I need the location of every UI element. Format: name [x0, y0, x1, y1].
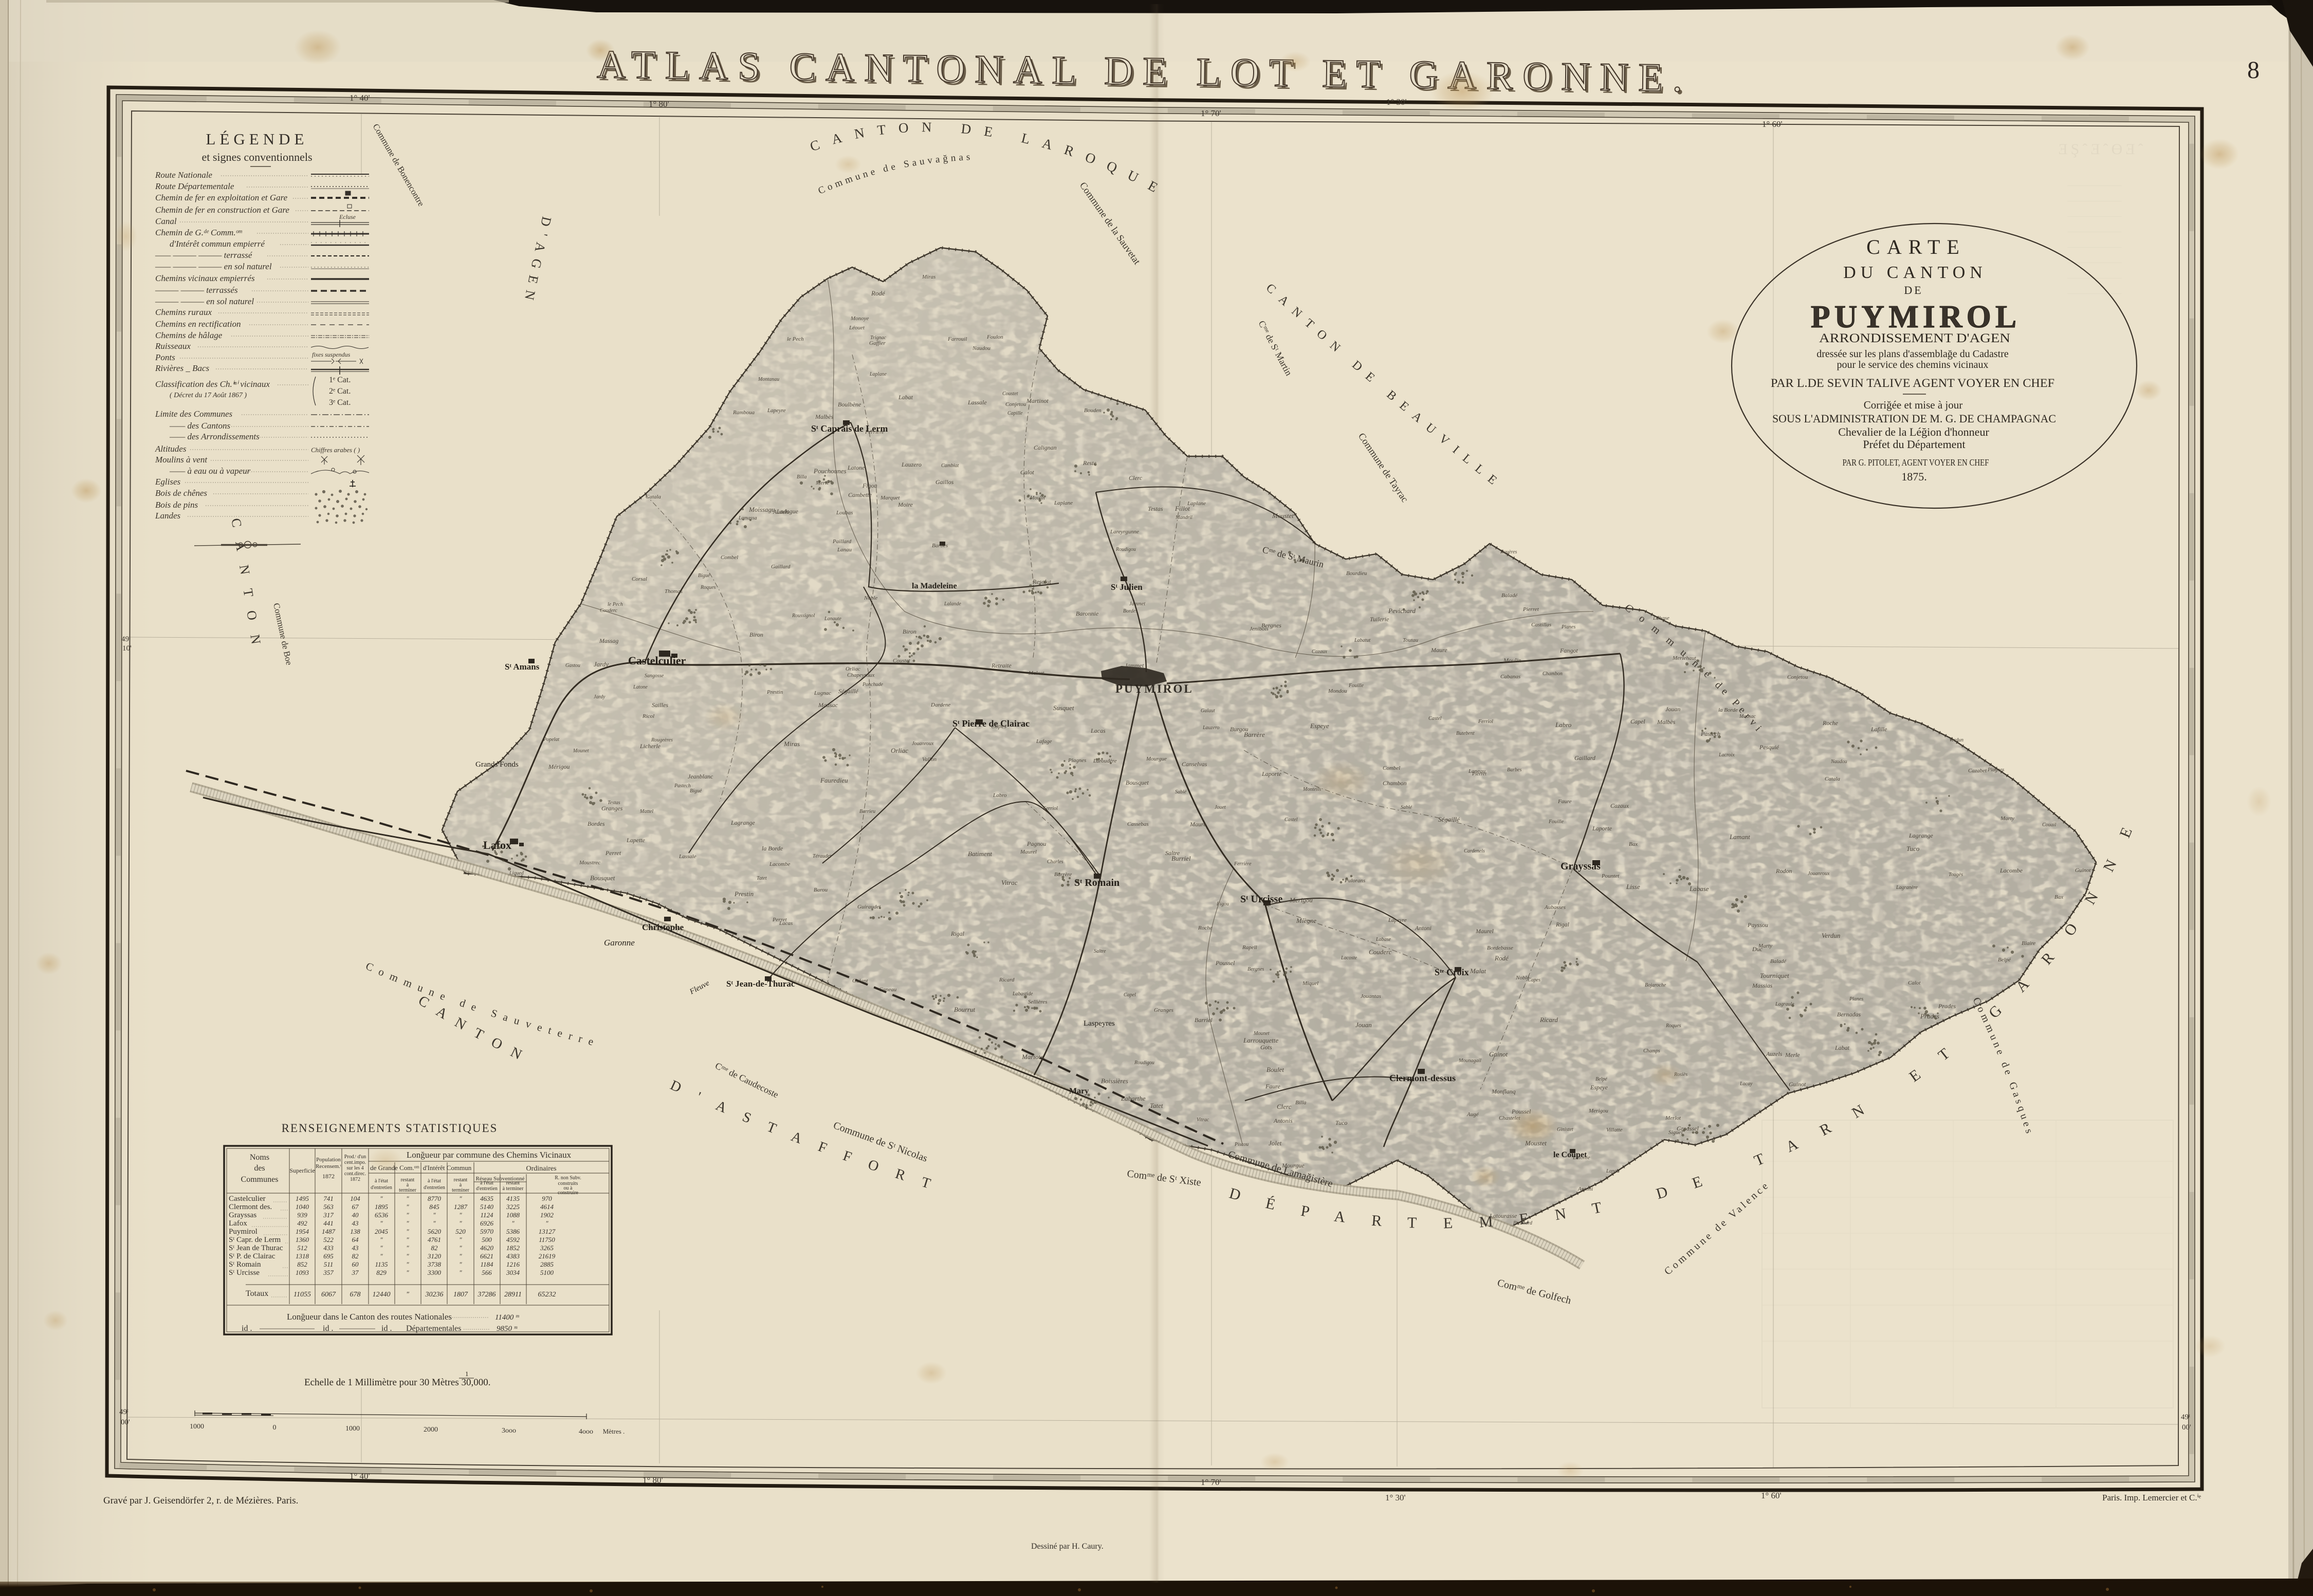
svg-text:6621: 6621 [480, 1252, 493, 1260]
svg-text:″: ″ [459, 1244, 462, 1252]
svg-text:1° 30': 1° 30' [1386, 97, 1407, 107]
svg-text:Mausac: Mausac [818, 701, 838, 709]
svg-text:60: 60 [352, 1260, 359, 1268]
svg-text:″: ″ [406, 1244, 409, 1252]
svg-text:Naudou: Naudou [972, 345, 990, 351]
svg-text:Pouchounes: Pouchounes [813, 467, 847, 475]
svg-text:3265: 3265 [540, 1244, 554, 1252]
svg-text:Malbès: Malbès [1657, 718, 1676, 726]
svg-text:Roche: Roche [1198, 925, 1213, 931]
svg-text:Butebent: Butebent [1456, 731, 1475, 736]
svg-text:Ruisseaux: Ruisseaux [155, 341, 191, 351]
svg-text:Loubas: Loubas [836, 510, 853, 516]
svg-text:5970: 5970 [480, 1228, 494, 1235]
svg-text:Sailles: Sailles [652, 701, 668, 709]
svg-text:la Borde: la Borde [762, 845, 783, 852]
svg-text:id .: id . [381, 1324, 392, 1333]
svg-text:Canselvas: Canselvas [1182, 760, 1207, 768]
svg-text:Laporte: Laporte [1592, 825, 1612, 832]
svg-text:——— ——— terrassés: ——— ——— terrassés [155, 285, 238, 295]
svg-text:d'entretien: d'entretien [371, 1185, 392, 1191]
svg-text:Téraudet: Téraudet [813, 853, 831, 859]
svg-text:Jeanblanc: Jeanblanc [688, 773, 713, 780]
svg-text:Ferriol: Ferriol [1042, 806, 1058, 811]
svg-text:566: 566 [482, 1269, 492, 1276]
svg-text:Lassale: Lassale [678, 853, 696, 860]
svg-text:Sellières: Sellières [1028, 999, 1047, 1005]
svg-text:Calot: Calot [1020, 469, 1034, 476]
svg-text:Bigué: Bigué [698, 573, 710, 579]
svg-text:Rougeères: Rougeères [651, 737, 673, 743]
svg-text:1° 30': 1° 30' [1385, 1493, 1406, 1502]
svg-text:43: 43 [352, 1219, 359, 1227]
svg-text:Calot: Calot [1908, 980, 1921, 986]
svg-text:Grayssas: Grayssas [229, 1211, 256, 1219]
svg-text:1000: 1000 [345, 1425, 360, 1433]
svg-text:Caneau: Caneau [879, 987, 897, 993]
svg-text:Testas: Testas [1148, 505, 1163, 512]
svg-text:1° 40': 1° 40' [350, 93, 370, 103]
svg-text:Rigal: Rigal [1555, 921, 1570, 928]
svg-text:Jardy: Jardy [594, 660, 609, 668]
svg-text:Rodé: Rodé [1494, 954, 1509, 962]
svg-text:Lacombe: Lacombe [1999, 867, 2023, 874]
svg-text:_______________: _______________ [2067, 210, 2122, 218]
svg-text:0: 0 [273, 1424, 277, 1432]
svg-text:Limite des Communes: Limite des Communes [155, 409, 233, 419]
svg-text:Labase: Labase [1689, 885, 1709, 893]
svg-text:Burriel: Burriel [1171, 855, 1191, 862]
svg-text:Rigal: Rigal [950, 930, 965, 937]
svg-text:5620: 5620 [428, 1228, 442, 1235]
svg-text:Ramboua: Ramboua [732, 410, 755, 416]
svg-text:Lauzero: Lauzero [1202, 725, 1219, 731]
svg-text:PUYMIROL: PUYMIROL [1115, 682, 1194, 695]
svg-text:1954: 1954 [296, 1228, 309, 1235]
svg-text:Départementales: Départementales [406, 1324, 462, 1333]
svg-text:1088: 1088 [506, 1211, 520, 1219]
svg-text:Miquel: Miquel [1302, 980, 1318, 987]
svg-text:Laporte: Laporte [1261, 770, 1282, 777]
svg-text:5100: 5100 [540, 1269, 554, 1276]
svg-text:Lapette: Lapette [626, 837, 646, 844]
svg-text:Baladé: Baladé [1770, 958, 1787, 964]
svg-text:Dardene: Dardene [930, 702, 950, 708]
svg-text:Laplane: Laplane [869, 372, 887, 377]
svg-text:Payssou: Payssou [1747, 921, 1768, 929]
svg-text:Bois de chênes: Bois de chênes [155, 488, 207, 498]
svg-text:cent.impo.: cent.impo. [344, 1160, 366, 1165]
svg-text:le Pech: le Pech [608, 602, 623, 607]
svg-text:Baladé: Baladé [1501, 592, 1518, 599]
svg-text:Echelle de 1 Millimètre pour 3: Echelle de 1 Millimètre pour 30 Mètres 3… [304, 1377, 491, 1388]
svg-text:Baronnie: Baronnie [1076, 610, 1099, 617]
svg-text:RENSEIGNEMENTS STATISTIQUES: RENSEIGNEMENTS STATISTIQUES [282, 1122, 498, 1135]
svg-text:Totaux: Totaux [246, 1289, 268, 1298]
svg-text:Corriğée et mise à jour: Corriğée et mise à jour [1864, 399, 1962, 411]
svg-text:Plagnes: Plagnes [1987, 767, 2004, 773]
svg-text:Lugnac: Lugnac [814, 690, 831, 696]
svg-text:Labro: Labro [1555, 721, 1572, 729]
svg-text:PAR G. PITOLET, AGENT VOYER EN: PAR G. PITOLET, AGENT VOYER EN CHEF [1843, 457, 1989, 468]
svg-text:Bordes: Bordes [588, 820, 605, 827]
svg-text:Boissières: Boissières [1101, 1077, 1128, 1085]
svg-text:Labat: Labat [1834, 1044, 1850, 1051]
svg-text:Fauredieu: Fauredieu [820, 776, 848, 784]
svg-text:Batiment: Batiment [968, 850, 992, 858]
svg-text:Ordinaires: Ordinaires [526, 1165, 556, 1173]
svg-text:Jammet: Jammet [1125, 662, 1144, 669]
svg-text:1000: 1000 [190, 1423, 204, 1431]
svg-text:Moulin: Moulin [1503, 657, 1521, 664]
svg-text:Massias: Massias [1752, 982, 1773, 989]
svg-text:Sᵗ P. de Clairac: Sᵗ P. de Clairac [229, 1252, 276, 1260]
svg-text:Lisse: Lisse [1626, 883, 1640, 890]
svg-text:d'Intérêt Commun: d'Intérêt Commun [423, 1164, 472, 1172]
svg-text:49ᵗ: 49ᵗ [121, 635, 131, 643]
svg-text:Granges: Granges [601, 805, 623, 812]
svg-text:00': 00' [121, 1418, 130, 1426]
svg-text:3225: 3225 [506, 1203, 520, 1211]
svg-text:Merle: Merle [815, 480, 829, 486]
svg-text:Bourrut: Bourrut [954, 1006, 976, 1013]
svg-text:_______________: _______________ [2067, 272, 2122, 280]
svg-text:Antonis: Antonis [1273, 1117, 1293, 1124]
svg-text:″: ″ [459, 1195, 462, 1202]
svg-text:Figou: Figou [1216, 901, 1229, 907]
svg-text:Faure: Faure [1557, 799, 1572, 805]
svg-text:Route Nationale: Route Nationale [155, 170, 212, 180]
svg-text:Sangosse: Sangosse [645, 673, 664, 679]
svg-text:1° 80': 1° 80' [642, 1475, 663, 1485]
svg-text:″: ″ [433, 1211, 436, 1219]
svg-text:4592: 4592 [506, 1236, 520, 1244]
svg-text:Lanaute: Lanaute [824, 616, 841, 622]
svg-text:Jardy: Jardy [594, 694, 605, 700]
svg-text:″: ″ [459, 1219, 462, 1227]
svg-text:11750: 11750 [539, 1236, 555, 1244]
svg-text:ARRONDISSEMENT D'AGEN: ARRONDISSEMENT D'AGEN [1819, 331, 2010, 345]
svg-text:Ricol: Ricol [642, 713, 654, 719]
svg-text:Chemins de hâlage: Chemins de hâlage [155, 330, 223, 340]
svg-text:Lacas: Lacas [1090, 727, 1106, 734]
svg-text:Belpé: Belpé [1998, 957, 2011, 963]
svg-text:Farrouil: Farrouil [947, 336, 967, 342]
svg-text:Perret: Perret [605, 849, 621, 857]
svg-text:Massag: Massag [599, 637, 618, 644]
svg-text:Prestin: Prestin [766, 689, 783, 695]
svg-text:Rapell: Rapell [1242, 944, 1257, 951]
svg-text:Labarthe: Labarthe [1121, 1094, 1146, 1102]
svg-text:4ooo: 4ooo [579, 1428, 593, 1436]
svg-text:Bax: Bax [2054, 894, 2063, 900]
svg-text:Mondou: Mondou [1328, 688, 1347, 694]
svg-text:11055: 11055 [293, 1291, 311, 1298]
svg-text:Merigou: Merigou [1588, 1108, 1608, 1114]
svg-text:Mandril: Mandril [1175, 515, 1192, 521]
svg-text:Poussel: Poussel [1215, 959, 1235, 967]
svg-text:43: 43 [352, 1244, 359, 1252]
svg-text:″: ″ [380, 1244, 383, 1252]
svg-text:″: ″ [406, 1236, 409, 1244]
svg-text:3738: 3738 [427, 1260, 442, 1268]
svg-text:″: ″ [380, 1236, 383, 1244]
svg-text:id .: id . [323, 1324, 333, 1333]
svg-text:Auzels: Auzels [1766, 1050, 1783, 1057]
svg-text:82: 82 [352, 1252, 359, 1260]
svg-text:Lacas: Lacas [779, 920, 793, 926]
svg-text:1° 40': 1° 40' [350, 1471, 370, 1481]
svg-text:Sᵗ Julien: Sᵗ Julien [1111, 582, 1143, 592]
svg-text:Lafage: Lafage [1036, 738, 1052, 745]
svg-text:Catala: Catala [646, 494, 661, 500]
svg-text:Billa: Billa [1295, 1100, 1307, 1106]
svg-text:Lafox: Lafox [483, 839, 511, 851]
svg-text:Jouantas: Jouantas [1361, 993, 1381, 999]
svg-text:Latone: Latone [633, 684, 648, 690]
svg-text:Monoye: Monoye [850, 316, 869, 322]
svg-text:37286: 37286 [478, 1291, 496, 1298]
svg-text:Rivières _ Bacs: Rivières _ Bacs [155, 363, 209, 373]
svg-text:——— ——— en sol naturel: ——— ——— en sol naturel [155, 296, 254, 306]
svg-text:Sᵗ Amans: Sᵗ Amans [505, 662, 540, 672]
svg-text:Sᵗ Romain: Sᵗ Romain [1074, 877, 1119, 888]
svg-text:à l'état: à l'état [428, 1178, 441, 1184]
svg-text:des: des [254, 1164, 265, 1173]
svg-text:1872: 1872 [350, 1177, 360, 1182]
svg-text:″: ″ [459, 1236, 462, 1244]
svg-text:ƎŞˆƎˆӨƎˆ: ƎŞˆƎˆӨƎˆ [2058, 141, 2146, 158]
svg-text:Barbes: Barbes [932, 543, 948, 549]
svg-text:Sᵗ Romain: Sᵗ Romain [229, 1260, 261, 1269]
svg-text:Galant: Galant [852, 978, 869, 984]
svg-text:12440: 12440 [373, 1291, 391, 1298]
svg-text:Clerc: Clerc [1129, 474, 1143, 481]
svg-text:Blaire: Blaire [2022, 940, 2035, 947]
svg-text:37: 37 [352, 1269, 359, 1276]
svg-text:Bousquet: Bousquet [590, 874, 615, 882]
svg-text:″: ″ [459, 1269, 462, 1276]
svg-text:Cambiat: Cambiat [941, 463, 959, 469]
svg-text:82: 82 [431, 1244, 438, 1252]
svg-text:Roques: Roques [1665, 1023, 1681, 1029]
svg-text:Latonie: Latonie [1572, 1155, 1590, 1161]
svg-text:4614: 4614 [540, 1203, 554, 1211]
svg-text:2045: 2045 [375, 1228, 389, 1235]
svg-text:Lareyrgunne: Lareyrgunne [1110, 529, 1139, 535]
svg-text:Lamant: Lamant [1729, 833, 1750, 841]
svg-text:Planes: Planes [1561, 624, 1575, 630]
svg-text:Roudigou: Roudigou [1134, 1060, 1154, 1066]
svg-text:Laplane: Laplane [1054, 500, 1073, 506]
svg-text:741: 741 [323, 1195, 334, 1202]
svg-text:3034: 3034 [506, 1269, 520, 1276]
svg-text:Lonğueur dans le Canton des ro: Lonğueur dans le Canton des routes Natio… [287, 1312, 452, 1322]
svg-text:CARTE: CARTE [1866, 235, 1966, 258]
svg-text:″: ″ [406, 1228, 409, 1235]
svg-text:Laneau: Laneau [1468, 768, 1486, 774]
svg-text:Testas: Testas [608, 800, 620, 806]
svg-text:Pastech: Pastech [1700, 730, 1720, 737]
svg-text:Ségaillé: Ségaillé [838, 688, 858, 695]
svg-text:Malat: Malat [1470, 967, 1486, 975]
svg-text:Jouet: Jouet [1215, 805, 1226, 810]
svg-text:Pountet: Pountet [1601, 873, 1620, 879]
svg-text:441: 441 [323, 1219, 334, 1227]
svg-text:845: 845 [429, 1203, 439, 1211]
svg-text:4135: 4135 [506, 1195, 520, 1202]
svg-text:″: ″ [406, 1252, 409, 1260]
svg-text:Naudou: Naudou [1830, 759, 1847, 765]
svg-text:R. non Subv.: R. non Subv. [555, 1175, 581, 1181]
svg-text:Castillas: Castillas [1531, 622, 1551, 628]
svg-text:fixes suspendus: fixes suspendus [312, 351, 351, 358]
svg-text:DU CANTON: DU CANTON [1843, 263, 1987, 282]
svg-text:Belpé: Belpé [1595, 1077, 1607, 1082]
svg-text:″: ″ [459, 1211, 462, 1219]
svg-text:1° 80': 1° 80' [649, 99, 669, 109]
svg-text:Lanau: Lanau [837, 547, 852, 553]
svg-text:Couderc: Couderc [1369, 948, 1392, 956]
svg-text:d'entretien: d'entretien [424, 1185, 445, 1191]
svg-text:Moustet: Moustet [1272, 512, 1294, 519]
svg-text:Bigué: Bigué [690, 788, 702, 794]
svg-text:( Décret du 17 Août 1867 ): ( Décret du 17 Août 1867 ) [170, 392, 247, 399]
svg-text:1135: 1135 [375, 1260, 388, 1268]
svg-text:Jolet: Jolet [1269, 1139, 1282, 1147]
svg-text:1° 60': 1° 60' [1761, 1491, 1782, 1500]
svg-text:Cambette: Cambette [848, 491, 872, 498]
svg-text:″: ″ [406, 1203, 409, 1211]
svg-text:Champs: Champs [1643, 1048, 1660, 1054]
svg-text:Lagraule: Lagraule [1775, 1001, 1794, 1007]
svg-text:Bergnes: Bergnes [1247, 967, 1264, 972]
svg-text:Moissagu: Moissagu [748, 506, 775, 513]
svg-text:id .: id . [242, 1324, 252, 1333]
svg-text:Lacroix: Lacroix [1718, 752, 1735, 758]
svg-text:Rodé: Rodé [871, 289, 886, 297]
svg-text:Merigou: Merigou [1289, 896, 1313, 904]
svg-text:LÉGENDE: LÉGENDE [206, 130, 308, 148]
svg-text:Altitudes: Altitudes [155, 444, 187, 454]
svg-text:Castel: Castel [1284, 817, 1298, 823]
svg-text:Espeye: Espeye [1590, 1084, 1608, 1091]
svg-text:Biron: Biron [749, 631, 763, 638]
svg-text:1° 70': 1° 70' [1201, 108, 1221, 118]
svg-text:Gaillard: Gaillard [1574, 754, 1596, 762]
svg-text:Latone: Latone [847, 464, 865, 471]
svg-text:″: ″ [459, 1260, 462, 1268]
svg-text:Combel: Combel [1383, 765, 1400, 771]
svg-text:Fouille: Fouille [1548, 819, 1564, 825]
svg-text:8: 8 [2247, 57, 2260, 84]
svg-text:433: 433 [323, 1244, 334, 1252]
svg-text:Ségaillé: Ségaillé [1438, 815, 1460, 823]
svg-text:Mariote: Mariote [1021, 1053, 1043, 1061]
svg-text:Grands Fonds: Grands Fonds [475, 760, 519, 769]
svg-text:Tatet: Tatet [1150, 1102, 1163, 1109]
svg-text:Piscou: Piscou [1234, 1142, 1249, 1147]
svg-text:Prades: Prades [1938, 1003, 1956, 1010]
svg-text:Faure: Faure [1265, 1083, 1281, 1090]
svg-text:Gastou: Gastou [565, 663, 580, 669]
svg-text:Bourdieu: Bourdieu [1346, 570, 1367, 577]
svg-text:_______________: _______________ [2067, 287, 2122, 295]
svg-text:Capes: Capes [1528, 977, 1540, 983]
svg-text:Vitrac: Vitrac [1197, 1117, 1209, 1123]
svg-text:construire: construire [558, 1190, 579, 1196]
svg-text:Tourniquet: Tourniquet [1760, 972, 1789, 979]
svg-text:Sᵗ Capr. de Lerm: Sᵗ Capr. de Lerm [229, 1236, 281, 1244]
svg-text:Bouden: Bouden [1084, 407, 1102, 414]
svg-text:″: ″ [511, 1219, 515, 1227]
svg-text:Maure: Maure [1430, 646, 1447, 654]
svg-text:Bordebasse: Bordebasse [1487, 945, 1513, 951]
svg-text:Vallon: Vallon [922, 756, 937, 763]
svg-text:Mattel: Mattel [639, 809, 653, 814]
svg-text:—— ——— ——— en sol naturel: —— ——— ——— en sol naturel [155, 262, 272, 271]
svg-text:Verdun: Verdun [1822, 932, 1840, 939]
svg-text:695: 695 [323, 1252, 334, 1260]
svg-text:sur les 4: sur les 4 [346, 1165, 363, 1171]
svg-text:563: 563 [323, 1203, 334, 1211]
svg-text:Labatut: Labatut [1354, 638, 1370, 643]
svg-text:Guinot: Guinot [1489, 1050, 1508, 1058]
svg-text:Miras: Miras [783, 740, 800, 748]
svg-text:4383: 4383 [506, 1252, 520, 1260]
svg-text:Lafille: Lafille [1870, 726, 1887, 733]
svg-text:Chemins en rectification: Chemins en rectification [155, 319, 241, 329]
svg-text:et signes conventionnels: et signes conventionnels [201, 151, 312, 163]
svg-text:Moustrec: Moustrec [579, 860, 600, 866]
svg-text:″: ″ [406, 1269, 409, 1276]
svg-text:_______________: _______________ [2067, 226, 2122, 233]
svg-text:Orliac: Orliac [891, 747, 908, 754]
svg-text:Barrieu: Barrieu [859, 809, 875, 814]
svg-text:à l'état: à l'état [480, 1180, 493, 1186]
svg-text:492: 492 [297, 1219, 307, 1227]
svg-text:Labat: Labat [898, 394, 913, 401]
svg-text:Rouères: Rouères [1500, 549, 1517, 555]
svg-text:Thomas: Thomas [665, 588, 683, 595]
svg-text:3120: 3120 [427, 1252, 442, 1260]
svg-text:138: 138 [350, 1228, 360, 1235]
svg-text:Fangot: Fangot [1559, 647, 1578, 654]
svg-text:13127: 13127 [539, 1228, 556, 1235]
svg-text:Superficie: Superficie [289, 1167, 315, 1174]
svg-text:Bernadas: Bernadas [1837, 1011, 1861, 1018]
svg-text:″: ″ [459, 1252, 462, 1260]
svg-text:6926: 6926 [480, 1219, 494, 1227]
svg-text:Guinot: Guinot [1789, 1081, 1806, 1088]
svg-text:Montanau: Montanau [758, 377, 779, 382]
svg-text:″: ″ [406, 1195, 409, 1202]
svg-text:cont.direc.: cont.direc. [344, 1171, 366, 1177]
svg-text:Gravé par J. Geisendörfer 2, r: Gravé par J. Geisendörfer 2, r. de Méziè… [103, 1495, 298, 1506]
svg-text:Miras: Miras [922, 274, 935, 280]
svg-text:1° 70': 1° 70' [1201, 1477, 1221, 1487]
svg-text:Trignac: Trignac [870, 335, 887, 341]
svg-text:d'Intérêt commun empierré: d'Intérêt commun empierré [170, 239, 265, 249]
svg-text:Prestin: Prestin [734, 890, 754, 898]
svg-text:Castelculier: Castelculier [229, 1195, 266, 1203]
svg-text:1184: 1184 [480, 1260, 493, 1268]
svg-text:Tougès: Tougès [1949, 872, 1963, 878]
svg-text:10': 10' [122, 644, 132, 653]
svg-text:520: 520 [455, 1228, 466, 1235]
svg-text:Mètres .: Mètres . [603, 1427, 625, 1435]
svg-text:511: 511 [324, 1260, 334, 1268]
